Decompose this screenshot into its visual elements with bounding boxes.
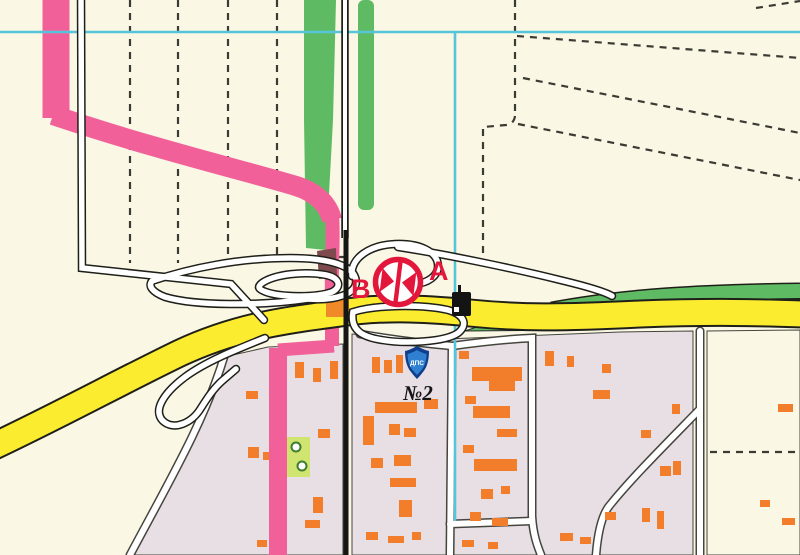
tree-icon: [298, 462, 307, 471]
route-point-b-label: B: [351, 274, 371, 304]
tree-icon: [292, 443, 301, 452]
street: [450, 521, 532, 524]
route-point-a-label: A: [429, 256, 449, 286]
block-number-label: №2: [402, 381, 433, 405]
map-svg[interactable]: ДПС №2 B A: [0, 0, 800, 555]
building-icon: [452, 292, 471, 316]
green-yard: [286, 437, 310, 477]
building-window: [454, 307, 459, 312]
police-post-shield-label: ДПС: [410, 360, 424, 367]
building-detail: [458, 285, 461, 293]
map-canvas[interactable]: ДПС №2 B A: [0, 0, 800, 555]
main-road: [345, 0, 346, 555]
